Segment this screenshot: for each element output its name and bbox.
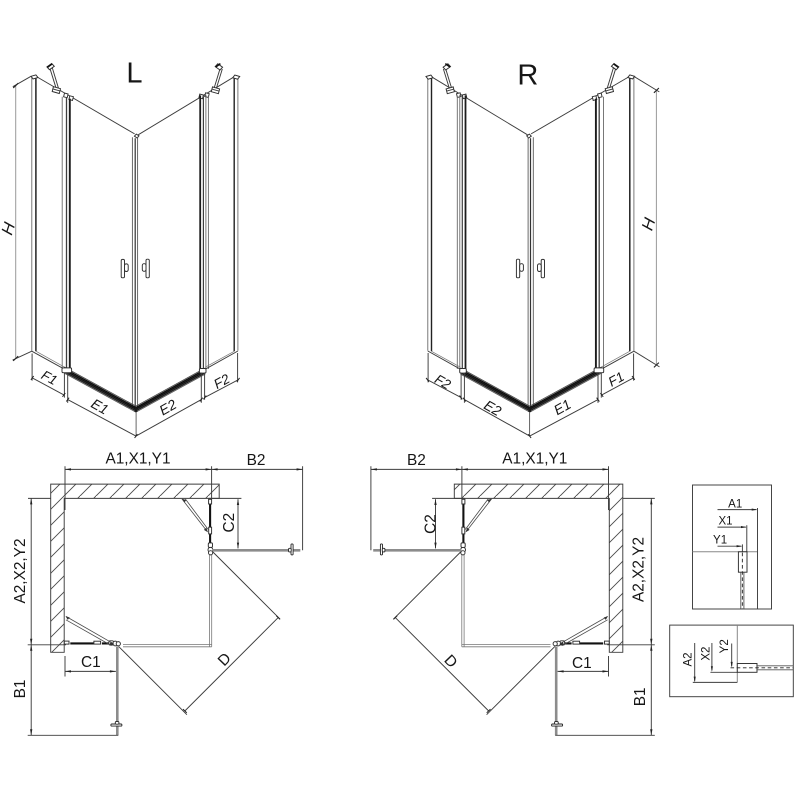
svg-text:C1: C1 — [81, 654, 101, 671]
svg-text:R: R — [517, 59, 538, 91]
svg-text:Y2: Y2 — [719, 639, 731, 653]
svg-text:C1: C1 — [572, 655, 592, 672]
svg-text:Y1: Y1 — [713, 534, 727, 546]
svg-text:A1,X1,Y1: A1,X1,Y1 — [105, 450, 170, 467]
svg-text:B2: B2 — [407, 452, 426, 469]
svg-text:A2,X2,Y2: A2,X2,Y2 — [630, 537, 647, 602]
svg-text:A1: A1 — [728, 498, 742, 510]
svg-text:B1: B1 — [12, 680, 29, 699]
svg-text:C2: C2 — [221, 513, 238, 533]
svg-text:A1,X1,Y1: A1,X1,Y1 — [502, 450, 567, 467]
svg-text:X1: X1 — [718, 515, 732, 527]
svg-text:B1: B1 — [632, 687, 649, 706]
svg-text:X2: X2 — [700, 647, 712, 661]
svg-text:C2: C2 — [422, 514, 439, 534]
svg-text:B2: B2 — [247, 452, 266, 469]
svg-text:A2,X2,Y2: A2,X2,Y2 — [12, 538, 29, 603]
svg-text:L: L — [126, 57, 142, 89]
svg-text:A2: A2 — [683, 652, 695, 666]
